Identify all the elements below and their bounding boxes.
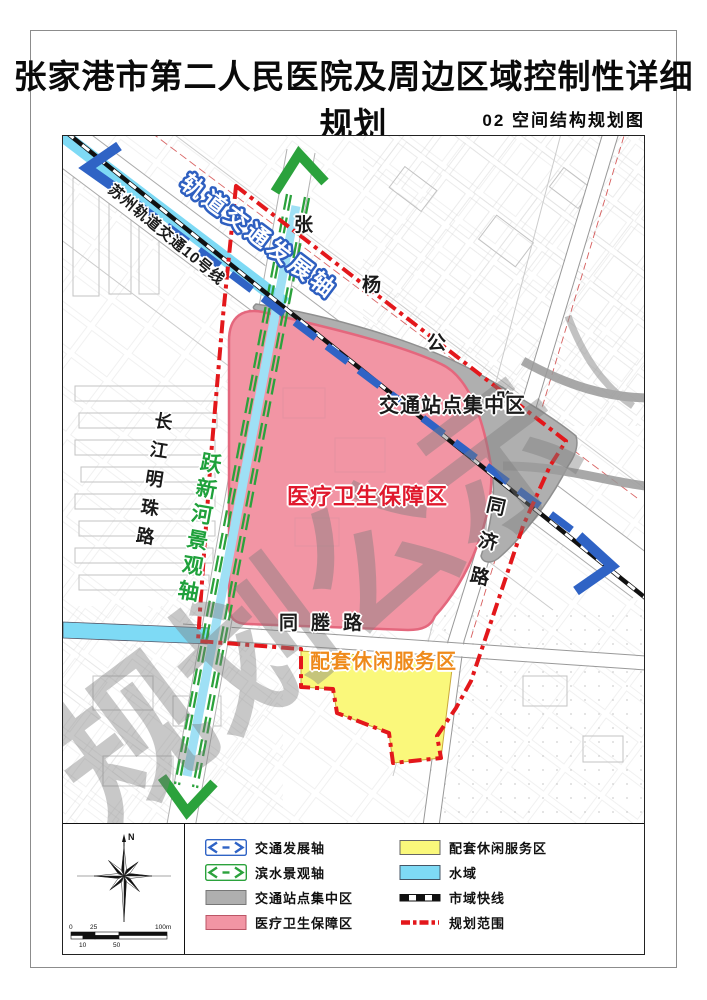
legend-row-traffic-axis: 交通发展轴 xyxy=(205,838,391,856)
scale-tick: 10 xyxy=(79,942,87,949)
legend-row-leisure-area: 配套休闲服务区 xyxy=(399,838,547,856)
scale-tick: 100m xyxy=(155,924,171,931)
north-label: N xyxy=(128,832,135,842)
legend-row-water: 水域 xyxy=(399,863,547,881)
waterfront-axis-symbol xyxy=(205,864,247,881)
page-title: 张家港市第二人民医院及周边区域控制性详细规划 xyxy=(0,50,707,146)
legend-row-waterfront-axis: 滨水景观轴 xyxy=(205,863,391,881)
medical-area-symbol xyxy=(205,914,247,931)
scale-tick: 0 xyxy=(69,924,73,931)
road-tongcheng-label: 同塍路 xyxy=(279,614,375,633)
leisure-area-label: 配套休闲服务区 xyxy=(310,652,457,672)
leisure-area-symbol xyxy=(399,839,441,856)
legend-label: 交通发展轴 xyxy=(255,838,325,857)
scale-tick: 25 xyxy=(90,924,98,931)
legend-label: 规划范围 xyxy=(449,913,505,932)
legend-row-express-line: 市域快线 xyxy=(399,888,547,906)
legend-label: 市域快线 xyxy=(449,888,505,907)
legend-label: 配套休闲服务区 xyxy=(449,838,547,857)
road-zhangyang-char: 杨 xyxy=(362,276,381,295)
page-subtitle: 02 空间结构规划图 xyxy=(482,106,645,131)
road-zhangyang-char: 公 xyxy=(427,334,446,353)
legend-row-station-area: 交通站点集中区 xyxy=(205,888,391,906)
station-area-symbol xyxy=(205,889,247,906)
plan-map: 轨道交通发展轴 规划公示 苏州轨道交通10号线 张 杨 公 路 交通站点集中区 … xyxy=(62,135,645,955)
compass-box: N xyxy=(63,824,185,955)
scale-bar: 0 25 100m 10 50 xyxy=(69,924,171,949)
legend-row-planning-boundary: 规划范围 xyxy=(399,913,547,931)
station-area-label: 交通站点集中区 xyxy=(379,396,526,416)
legend-label: 滨水景观轴 xyxy=(255,863,325,882)
legend-bar: N xyxy=(63,823,645,955)
legend-row-medical-area: 医疗卫生保障区 xyxy=(205,913,391,931)
scale-tick: 50 xyxy=(113,942,121,949)
medical-area-label: 医疗卫生保障区 xyxy=(287,486,448,508)
planning-boundary-symbol xyxy=(399,914,441,931)
legend-label: 医疗卫生保障区 xyxy=(255,913,353,932)
water-symbol xyxy=(399,864,441,881)
compass-rose: N xyxy=(63,824,185,955)
legend-label: 交通站点集中区 xyxy=(255,888,353,907)
plan-sheet: 张家港市第二人民医院及周边区域控制性详细规划 02 空间结构规划图 xyxy=(0,0,707,1000)
traffic-axis-symbol xyxy=(205,839,247,856)
legend-label: 水域 xyxy=(449,863,477,882)
legend-items: 交通发展轴 滨水景观轴 xyxy=(185,824,645,955)
road-zhangyang-char: 张 xyxy=(294,216,313,235)
express-line-symbol xyxy=(399,889,441,906)
